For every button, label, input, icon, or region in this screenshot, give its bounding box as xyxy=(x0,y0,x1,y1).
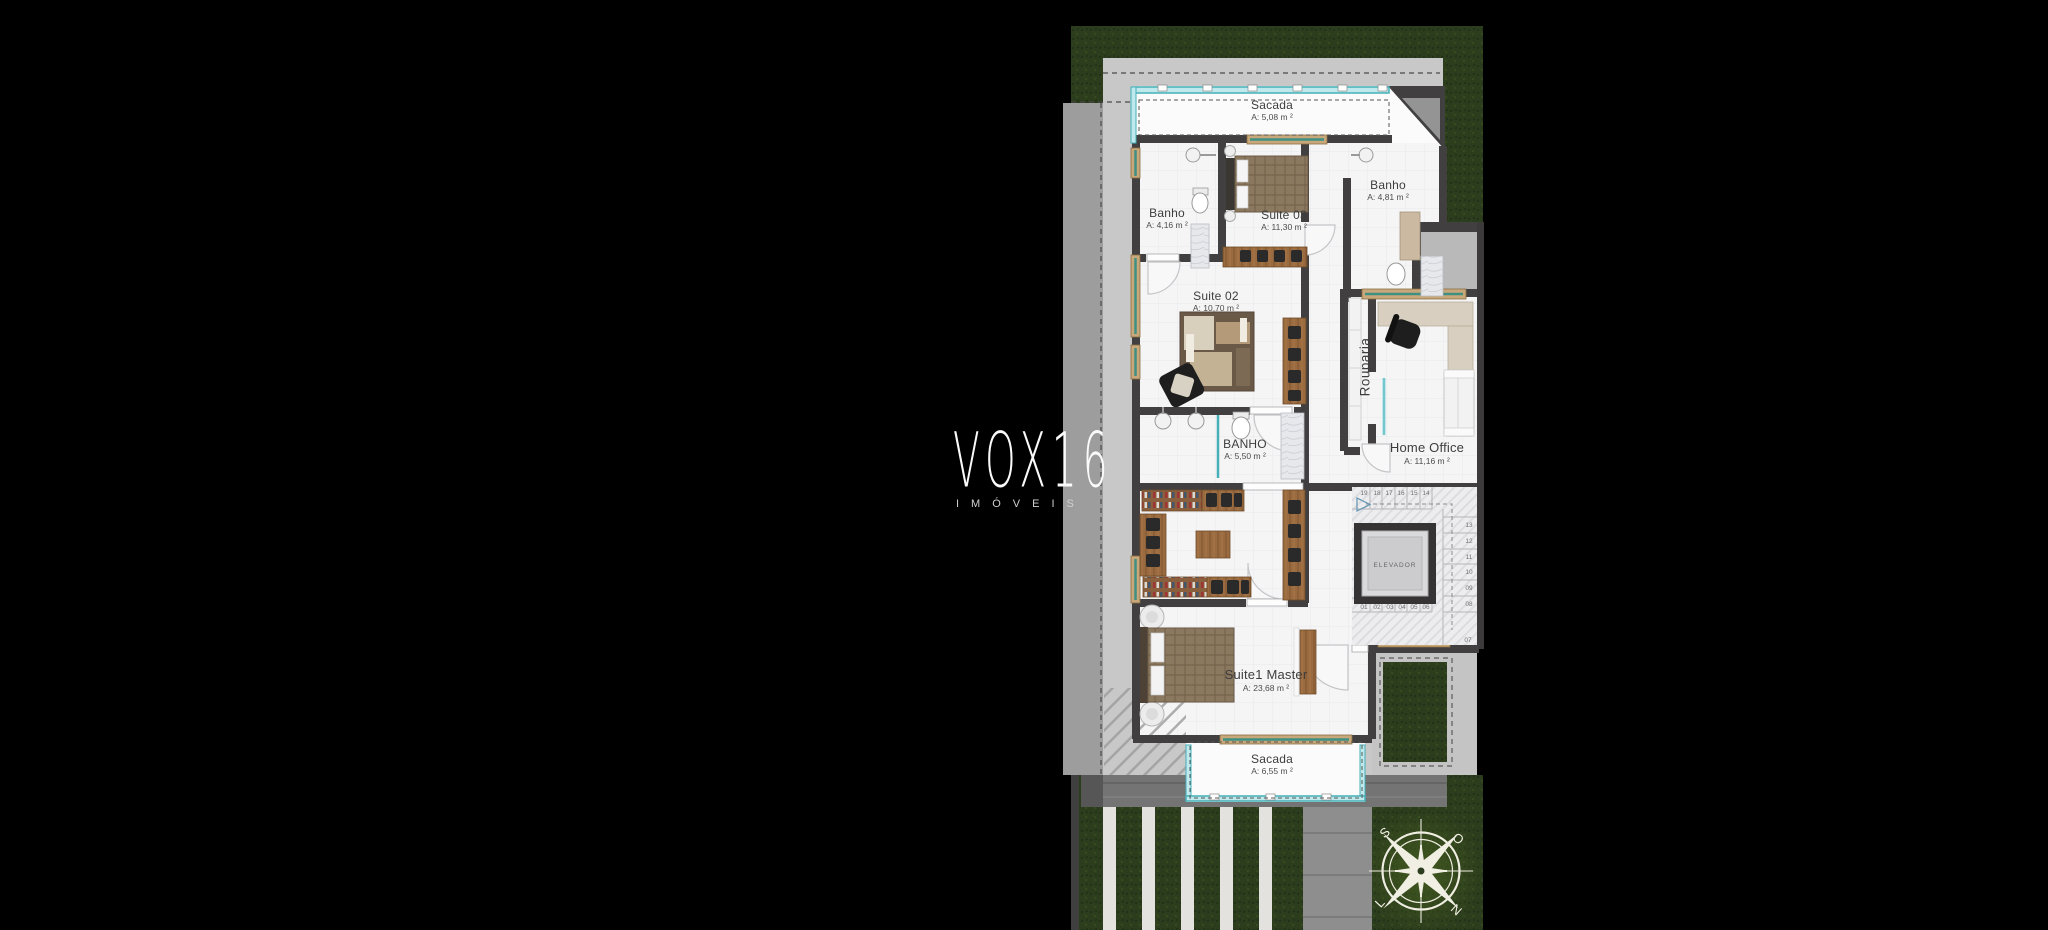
stair-number: 14 xyxy=(1422,490,1430,497)
room-name: Rouparia xyxy=(1358,338,1373,397)
stair-number: 04 xyxy=(1398,604,1406,611)
stair-number: 10 xyxy=(1465,569,1473,576)
room-label-banho-suite3: Banho A: 4,81 m ² xyxy=(1367,178,1409,203)
room-area: A: 6,55 m ² xyxy=(1251,766,1293,776)
stair-number: 01 xyxy=(1360,604,1368,611)
stair-number: 06 xyxy=(1422,604,1430,611)
stair-number: 18 xyxy=(1373,490,1381,497)
elevator-label: ELEVADOR xyxy=(1374,562,1417,569)
room-label-banho-master: BANHO A: 5,50 m ² xyxy=(1223,437,1267,462)
stair-number: 09 xyxy=(1465,585,1473,592)
room-area: A: 5,08 m ² xyxy=(1251,112,1293,122)
brand-logo-text: VOX16 xyxy=(953,424,1114,499)
room-name: Suite 03 xyxy=(1261,208,1307,222)
room-label-suite-03: Suite 03 A: 11,30 m ² xyxy=(1261,208,1307,233)
room-label-banho-suite2: Banho A: 4,16 m ² xyxy=(1146,206,1188,231)
room-label-rouparia: Rouparia xyxy=(1358,338,1373,397)
room-label-suite-02: Suite 02 A: 10,70 m ² xyxy=(1193,289,1239,314)
room-label-suite-master: Suite1 Master A: 23,68 m ² xyxy=(1225,667,1308,693)
stair-number: 12 xyxy=(1465,538,1473,545)
stair-number: 07 xyxy=(1464,637,1472,644)
room-area: A: 5,50 m ² xyxy=(1223,451,1267,461)
courtyard xyxy=(1372,645,1477,775)
room-name: Home Office xyxy=(1390,440,1464,456)
room-name: Suite1 Master xyxy=(1225,667,1308,683)
floor-plan-screenshot: 19 18 17 16 15 14 13 12 11 10 09 08 01 0… xyxy=(0,0,2048,930)
room-area: A: 11,16 m ² xyxy=(1390,456,1464,466)
brand-watermark: VOX16 IMÓVEIS xyxy=(953,424,1167,476)
room-name: BANHO xyxy=(1223,437,1267,451)
stair-number: 08 xyxy=(1465,601,1473,608)
stair-number: 17 xyxy=(1385,490,1393,497)
brand-subtitle: IMÓVEIS xyxy=(956,498,1086,510)
room-label-sacada-top: Sacada A: 5,08 m ² xyxy=(1251,98,1293,123)
stair-number: 16 xyxy=(1397,490,1405,497)
stair-number: 11 xyxy=(1466,554,1473,561)
room-name: Sacada xyxy=(1251,752,1293,766)
room-area: A: 11,30 m ² xyxy=(1261,222,1307,232)
suite3-furniture xyxy=(1223,146,1308,268)
room-area: A: 10,70 m ² xyxy=(1193,303,1239,313)
compass-rose-icon: S O L N xyxy=(1369,819,1473,923)
room-name: Sacada xyxy=(1251,98,1293,112)
room-label-sacada-bottom: Sacada A: 6,55 m ² xyxy=(1251,752,1293,777)
stair-number: 05 xyxy=(1410,604,1418,611)
stair-number: 03 xyxy=(1386,604,1394,611)
room-area: A: 4,81 m ² xyxy=(1367,192,1409,202)
room-name: Banho xyxy=(1367,178,1409,192)
room-name: Banho xyxy=(1146,206,1188,220)
room-label-home-office: Home Office A: 11,16 m ² xyxy=(1390,440,1464,466)
room-name: Suite 02 xyxy=(1193,289,1239,303)
stair-number: 13 xyxy=(1465,522,1473,529)
room-area: A: 4,16 m ² xyxy=(1146,220,1188,230)
elevator: ELEVADOR xyxy=(1354,523,1436,604)
stair-number: 19 xyxy=(1360,490,1368,497)
stair-number: 15 xyxy=(1410,490,1418,497)
stair-number: 02 xyxy=(1373,604,1381,611)
room-area: A: 23,68 m ² xyxy=(1225,683,1308,693)
